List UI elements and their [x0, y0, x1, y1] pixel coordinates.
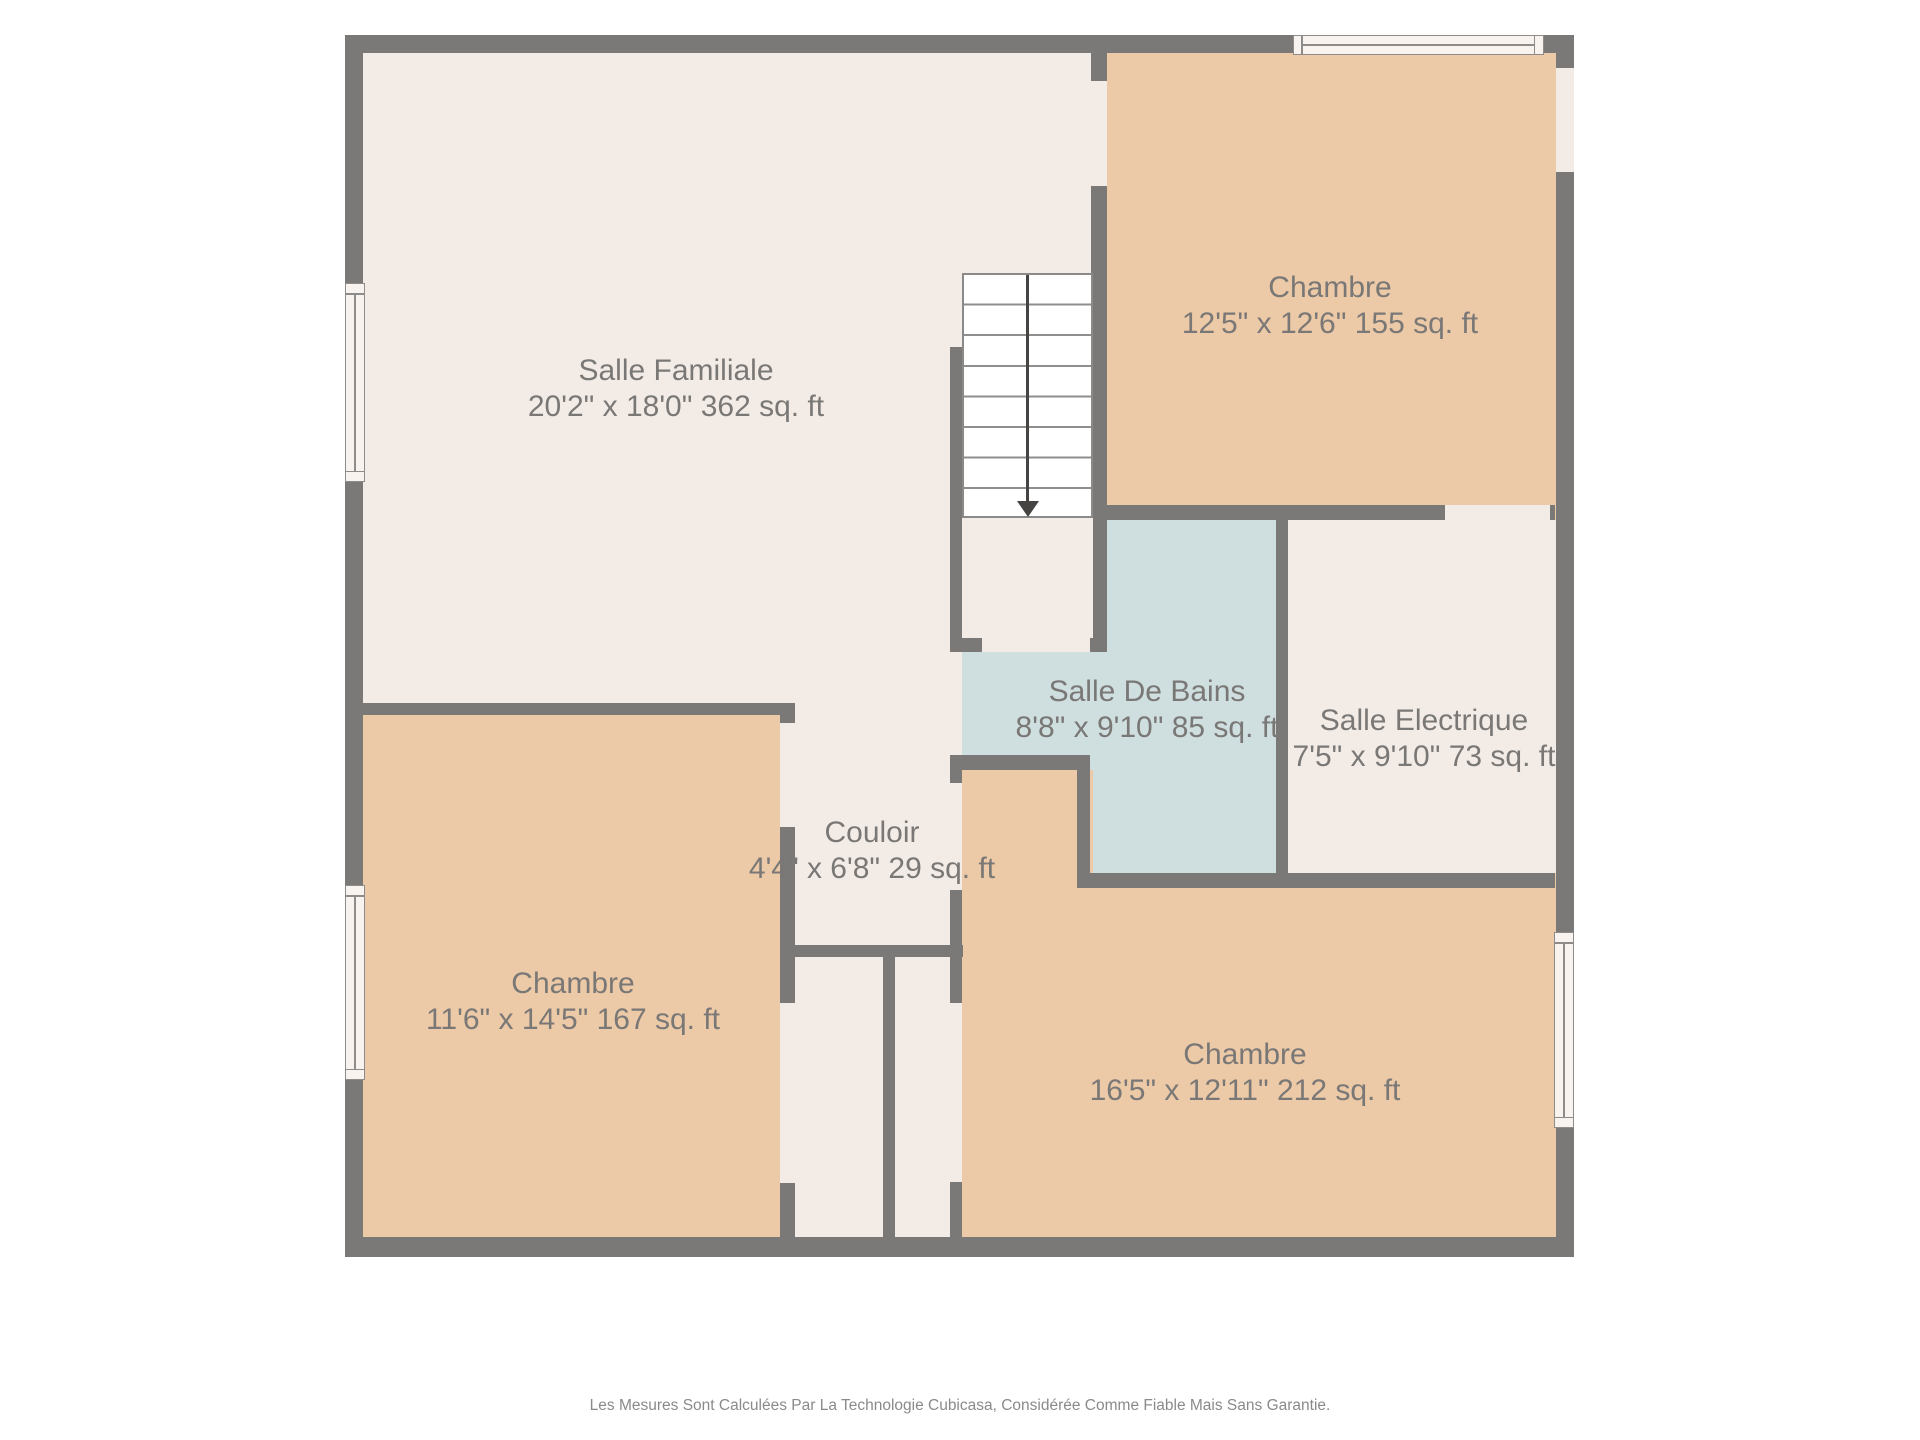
- wall-opening-right-top: [1556, 68, 1574, 172]
- door-opening-couloir-bath: [950, 652, 962, 755]
- room-dimensions: 7'5" x 9'10" 73 sq. ft: [1293, 739, 1556, 775]
- room-name: Chambre: [1182, 270, 1478, 306]
- wall-landing-right: [1093, 520, 1107, 652]
- window-frame-line: [1555, 942, 1573, 944]
- window-frame-line: [346, 895, 364, 897]
- window-left-top: [345, 283, 365, 482]
- window-glass-line: [1301, 44, 1535, 46]
- wall-outer-bottom: [345, 1237, 1574, 1257]
- wall-bath-corner-vertical: [1077, 755, 1090, 885]
- room-dimensions: 11'6" x 14'5" 167 sq. ft: [426, 1002, 720, 1038]
- room-dimensions: 4'4" x 6'8" 29 sq. ft: [749, 851, 995, 887]
- room-name: Salle Familiale: [528, 353, 824, 389]
- room-name: Chambre: [426, 966, 720, 1002]
- wall-bath-corner-horizontal: [950, 755, 1077, 770]
- window-top: [1293, 35, 1544, 55]
- room-name: Chambre: [1090, 1037, 1401, 1073]
- floor-plan: Salle Familiale 20'2" x 18'0" 362 sq. ft…: [345, 35, 1574, 1257]
- door-opening-closet-right: [950, 1003, 962, 1182]
- stairs-down-arrow-icon: [1017, 501, 1039, 517]
- room-dimensions: 16'5" x 12'11" 212 sq. ft: [1090, 1073, 1401, 1109]
- door-opening-chambre-ne: [1091, 81, 1107, 186]
- room-dimensions: 12'5" x 12'6" 155 sq. ft: [1182, 306, 1478, 342]
- window-right: [1554, 932, 1574, 1128]
- room-name: Couloir: [749, 815, 995, 851]
- window-frame-line: [1555, 1117, 1573, 1119]
- window-frame-line: [346, 293, 364, 295]
- room-dimensions: 20'2" x 18'0" 362 sq. ft: [528, 389, 824, 425]
- room-label-chambre-sud-ouest: Chambre 11'6" x 14'5" 167 sq. ft: [426, 966, 720, 1038]
- stairs-direction-line: [1026, 275, 1029, 504]
- footer-disclaimer: Les Mesures Sont Calculées Par La Techno…: [590, 1397, 1331, 1415]
- wall-closet-divider: [883, 957, 895, 1237]
- wall-couloir-bottom: [782, 945, 963, 957]
- room-dimensions: 8'8" x 9'10" 85 sq. ft: [1016, 710, 1279, 746]
- door-opening-closet-left: [780, 1003, 795, 1183]
- window-frame-line: [346, 1069, 364, 1071]
- room-label-chambre-nord-est: Chambre 12'5" x 12'6" 155 sq. ft: [1182, 270, 1478, 342]
- door-opening-chambre-sw: [780, 723, 795, 827]
- window-glass-line: [354, 293, 356, 472]
- door-opening-landing-bath: [982, 638, 1090, 652]
- window-frame-line: [346, 471, 364, 473]
- room-label-salle-electrique: Salle Electrique 7'5" x 9'10" 73 sq. ft: [1293, 703, 1556, 775]
- staircase: [962, 273, 1093, 518]
- wall-stair-left: [950, 347, 962, 652]
- window-left-bottom: [345, 885, 365, 1080]
- room-label-chambre-sud-est: Chambre 16'5" x 12'11" 212 sq. ft: [1090, 1037, 1401, 1109]
- room-name: Salle Electrique: [1293, 703, 1556, 739]
- wall-chambre-sw-top: [345, 703, 793, 715]
- window-frame-line: [1301, 36, 1303, 54]
- window-glass-line: [354, 895, 356, 1070]
- room-label-salle-de-bains: Salle De Bains 8'8" x 9'10" 85 sq. ft: [1016, 674, 1279, 746]
- window-glass-line: [1563, 942, 1565, 1118]
- door-opening-salle-electrique: [1445, 505, 1550, 520]
- wall-south-divider: [1077, 873, 1555, 888]
- room-label-salle-familiale: Salle Familiale 20'2" x 18'0" 362 sq. ft: [528, 353, 824, 425]
- room-label-couloir: Couloir 4'4" x 6'8" 29 sq. ft: [749, 815, 995, 887]
- window-frame-line: [1534, 36, 1536, 54]
- room-name: Salle De Bains: [1016, 674, 1279, 710]
